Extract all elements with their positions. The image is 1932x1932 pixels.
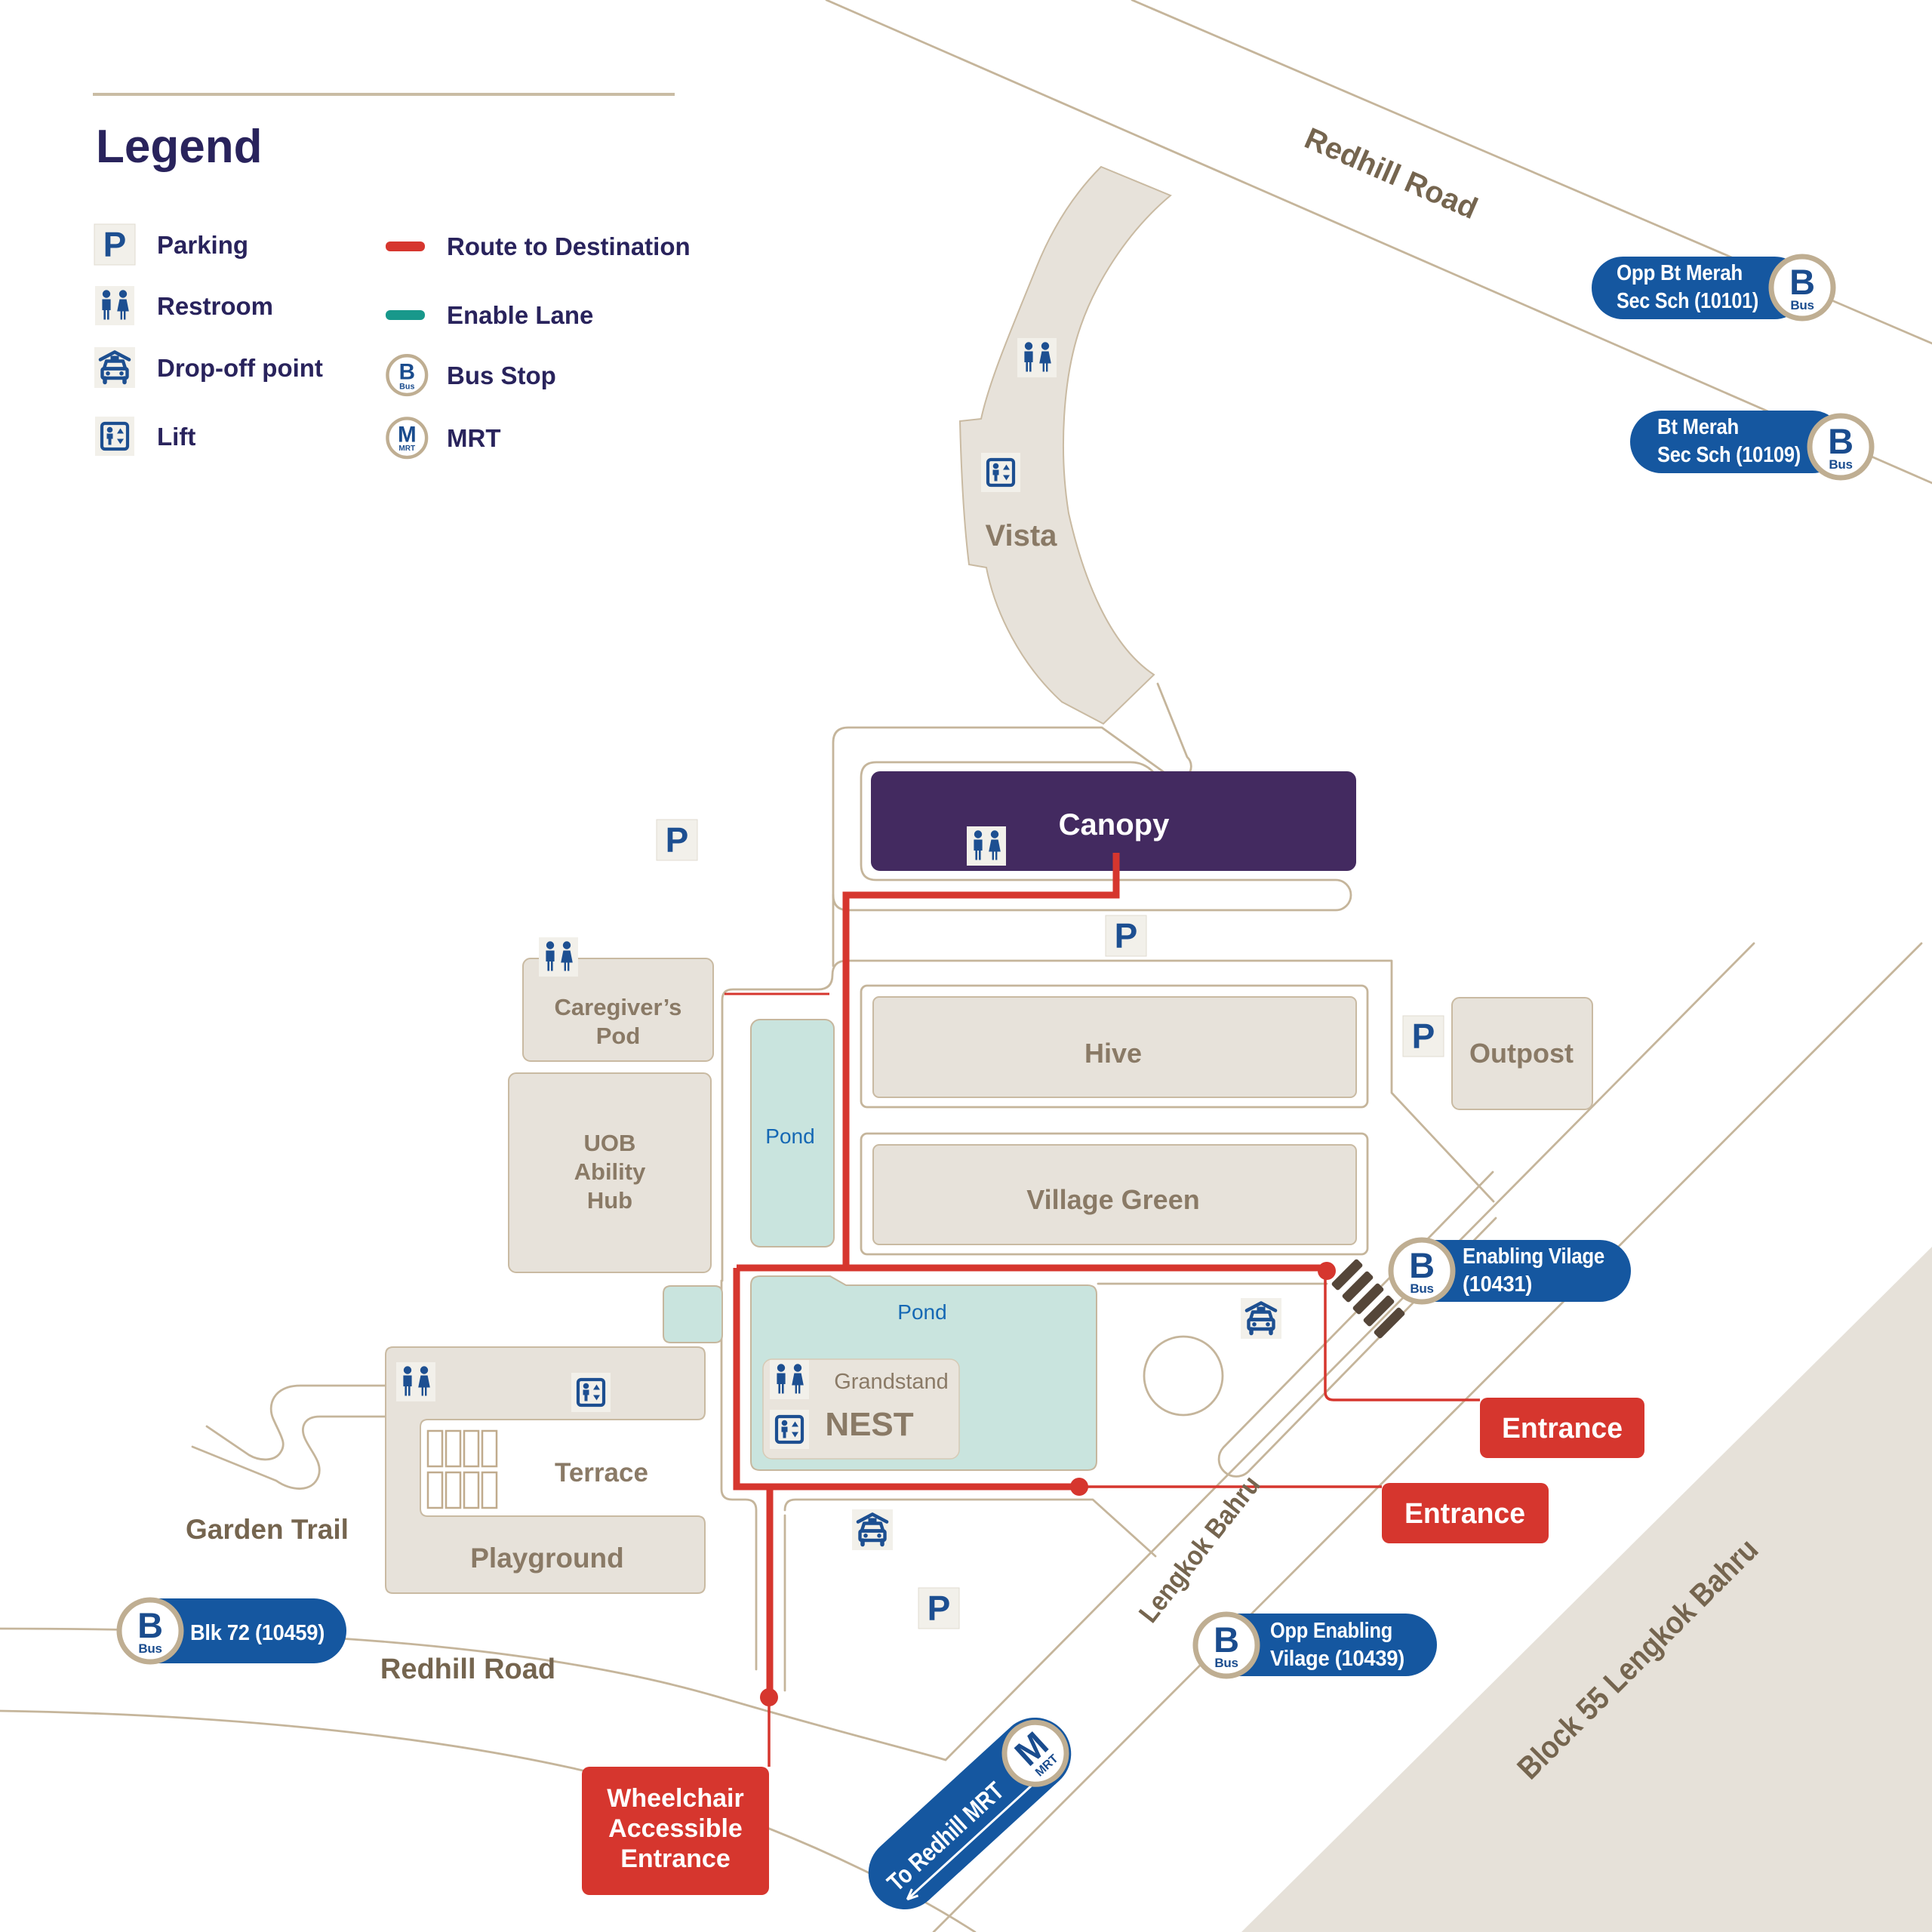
svg-text:Caregiver’s: Caregiver’s xyxy=(555,994,682,1020)
svg-text:Restroom: Restroom xyxy=(157,292,273,320)
svg-text:Sec Sch (10101): Sec Sch (10101) xyxy=(1617,289,1758,313)
svg-text:Accessible: Accessible xyxy=(608,1814,743,1843)
svg-text:Hive: Hive xyxy=(1084,1038,1142,1069)
svg-text:Lift: Lift xyxy=(157,423,195,451)
svg-text:Pod: Pod xyxy=(596,1023,641,1049)
svg-text:Entrance: Entrance xyxy=(1404,1498,1525,1530)
svg-text:Bt Merah: Bt Merah xyxy=(1657,415,1739,439)
svg-text:Entrance: Entrance xyxy=(620,1844,731,1873)
svg-text:Ability: Ability xyxy=(574,1158,646,1185)
svg-text:Playground: Playground xyxy=(470,1543,624,1574)
svg-text:Vilage (10439): Vilage (10439) xyxy=(1270,1647,1404,1671)
svg-text:NEST: NEST xyxy=(825,1406,913,1443)
svg-text:Pond: Pond xyxy=(897,1300,946,1324)
svg-text:(10431): (10431) xyxy=(1463,1272,1532,1297)
svg-text:Garden Trail: Garden Trail xyxy=(186,1514,349,1545)
svg-text:Enable Lane: Enable Lane xyxy=(447,301,593,329)
svg-text:Opp Enabling: Opp Enabling xyxy=(1270,1619,1392,1643)
svg-text:Grandstand: Grandstand xyxy=(834,1370,949,1394)
svg-text:UOB: UOB xyxy=(584,1130,636,1156)
svg-text:Terrace: Terrace xyxy=(555,1458,648,1487)
svg-text:Wheelchair: Wheelchair xyxy=(607,1784,743,1813)
svg-text:Canopy: Canopy xyxy=(1059,808,1170,841)
svg-text:Redhill Road: Redhill Road xyxy=(380,1654,555,1685)
svg-text:Bus Stop: Bus Stop xyxy=(447,361,556,389)
svg-text:MRT: MRT xyxy=(447,424,500,452)
svg-text:Vista: Vista xyxy=(986,519,1058,552)
svg-text:Drop-off point: Drop-off point xyxy=(157,354,323,382)
svg-text:Sec Sch (10109): Sec Sch (10109) xyxy=(1657,443,1801,467)
svg-text:Parking: Parking xyxy=(157,231,248,259)
svg-text:Pond: Pond xyxy=(765,1124,814,1148)
svg-text:Hub: Hub xyxy=(587,1187,632,1214)
svg-text:Enabling Vilage: Enabling Vilage xyxy=(1463,1244,1604,1269)
svg-text:Legend: Legend xyxy=(96,121,262,173)
svg-text:Opp Bt Merah: Opp Bt Merah xyxy=(1617,261,1743,285)
svg-text:Outpost: Outpost xyxy=(1469,1038,1574,1069)
svg-text:Village Green: Village Green xyxy=(1026,1184,1199,1215)
svg-text:Blk 72 (10459): Blk 72 (10459) xyxy=(190,1621,325,1645)
svg-text:Route to Destination: Route to Destination xyxy=(447,232,691,260)
svg-text:Entrance: Entrance xyxy=(1502,1413,1623,1444)
